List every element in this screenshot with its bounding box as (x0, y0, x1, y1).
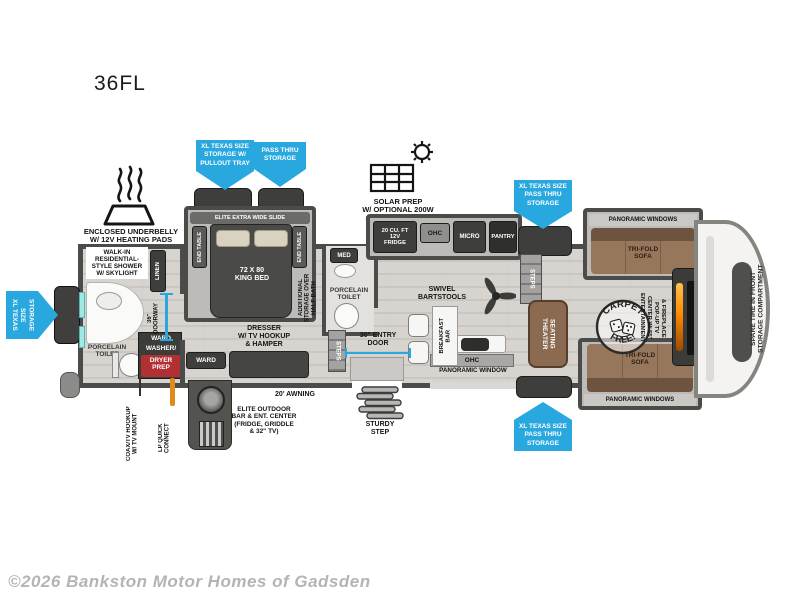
doorway-dim-line (165, 294, 168, 340)
solar-prep-icon (368, 140, 436, 198)
end-table-left: END TABLE (192, 226, 207, 268)
theater-seating: THEATER SEATING (528, 300, 568, 368)
rear-toilet-tank (112, 352, 119, 378)
heating-pads-icon (100, 164, 158, 228)
grill-grate-icon (199, 421, 224, 447)
barstools-label: SWIVEL BARTSTOOLS (402, 286, 482, 302)
entry-interior-steps: STEPS (328, 330, 346, 372)
dryer-prep-box: DRYER PREP (141, 355, 181, 377)
overhead-cabinet: OHC (420, 223, 450, 243)
breakfast-bar: BREAKFAST BAR (432, 306, 458, 366)
callout-storage-pullout: XL TEXAS SIZE STORAGE W/ PULLOUT TRAY (196, 140, 254, 190)
half-bath-toilet (334, 303, 359, 329)
floorplan-diagram: 36FL ENCLOSED UNDERBELLY W/ 12V HEATING … (0, 0, 800, 600)
awning-label: 20' AWNING (262, 391, 328, 399)
microwave: MICRO (453, 221, 486, 253)
linen-label: LINEN (155, 262, 161, 280)
bathroom-window (79, 292, 85, 318)
callout-xl-pass-thru-bottom: XL TEXAS SIZE PASS THRU STORAGE (514, 402, 572, 451)
front-steps: STEPS (520, 254, 542, 304)
arrow-down-icon (196, 171, 254, 190)
entertainment-label: ENTERTAINMENT CENTER W/ 55" POP-UP TV & … (638, 270, 672, 366)
dresser-cabinet (229, 351, 309, 378)
pass-thru-storage-top (518, 226, 572, 256)
shower-label: WALK-IN RESIDENTIAL- STYLE SHOWER W/ SKY… (86, 247, 148, 279)
rear-tank (60, 372, 80, 398)
lp-label: LP QUICK CONNECT (158, 408, 182, 468)
half-bath-sink (334, 264, 356, 278)
doorway-label: 36" DOORWAY (147, 292, 164, 344)
arrow-up-icon (514, 402, 572, 420)
kitchen-slide: 20 CU. FT 12V FRIDGE OHC MICRO PANTRY (366, 214, 522, 260)
callout-xl-pass-thru-top: XL TEXAS SIZE PASS THRU STORAGE (514, 180, 572, 229)
griddle-icon (197, 386, 225, 414)
arrow-right-icon (38, 291, 58, 339)
panoramic-windows-bar: PANORAMIC WINDOWS (584, 394, 696, 406)
front-cap-window (732, 262, 752, 362)
pillow (254, 230, 288, 247)
arrow-down-icon (254, 169, 306, 187)
outdoor-kitchen-label: ELITE OUTDOOR BAR & ENT. CENTER (FRIDGE,… (224, 406, 304, 435)
half-bath-storage-label: ADDITIONAL STORAGE OVER HALF BATH (298, 262, 324, 334)
sturdy-step-icon (356, 386, 404, 420)
entry-dim-cap (409, 348, 411, 358)
shower-sink (96, 292, 122, 310)
underbelly-label: ENCLOSED UNDERBELLY W/ 12V HEATING PADS (74, 228, 188, 245)
king-bed: 72 X 80 KING BED (210, 224, 292, 318)
copyright-text: ©2026 Bankston Motor Homes of Gadsden (8, 572, 428, 591)
pantry: PANTRY (489, 221, 517, 253)
doorway-dim-cap (160, 339, 173, 341)
arrow-down-icon (514, 211, 572, 229)
doorway-dim-cap (160, 293, 173, 295)
sink (461, 338, 489, 351)
lp-line (170, 378, 175, 406)
spare-tire-label: SPARE TIRE IN FRONT STORAGE COMPARTMENT (750, 248, 780, 370)
callout-pass-thru: PASS THRU STORAGE (254, 142, 306, 187)
slide-header: ELITE EXTRA WIDE SLIDE (190, 212, 310, 224)
barstool (408, 314, 429, 337)
pass-thru-storage-bottom (516, 376, 572, 398)
callout-xl-storage-rear: XL TEXAS SIZE STORAGE (6, 288, 62, 342)
ceiling-fan-icon (476, 276, 516, 316)
fireplace-glow (676, 283, 683, 351)
fridge: 20 CU. FT 12V FRIDGE (373, 221, 417, 253)
entry-dim-cap (345, 348, 347, 358)
pillow (216, 230, 250, 247)
entry-dim-line (346, 352, 410, 354)
sofa-label: TRI-FOLD SOFA (601, 246, 685, 261)
half-bath-toilet-label: PORCELAIN TOILET (322, 287, 376, 302)
entry-door-label: 30" ENTRY DOOR (346, 332, 410, 348)
linen-cabinet: LINEN (150, 250, 166, 292)
med-cabinet: MED (330, 248, 358, 263)
panoramic-windows-bar: PANORAMIC WINDOWS (589, 214, 697, 226)
barstool (408, 341, 429, 364)
king-bed-label: 72 X 80 KING BED (211, 267, 293, 283)
panoramic-window-strip (430, 382, 516, 389)
washer-label: WASHER/ (139, 345, 183, 352)
sturdy-step-label: STURDY STEP (356, 421, 404, 437)
entry-landing (350, 357, 404, 381)
bathroom-wall (180, 340, 185, 386)
coax-label: COAX/TV HOOKUP W/ TV MOUNT (126, 394, 150, 474)
bedroom-ward: WARD (186, 352, 226, 369)
bedroom-slide: ELITE EXTRA WIDE SLIDE END TABLE END TAB… (184, 206, 316, 322)
page-title: 36FL (94, 72, 146, 96)
panoramic-window-label: PANORAMIC WINDOW (432, 367, 514, 374)
